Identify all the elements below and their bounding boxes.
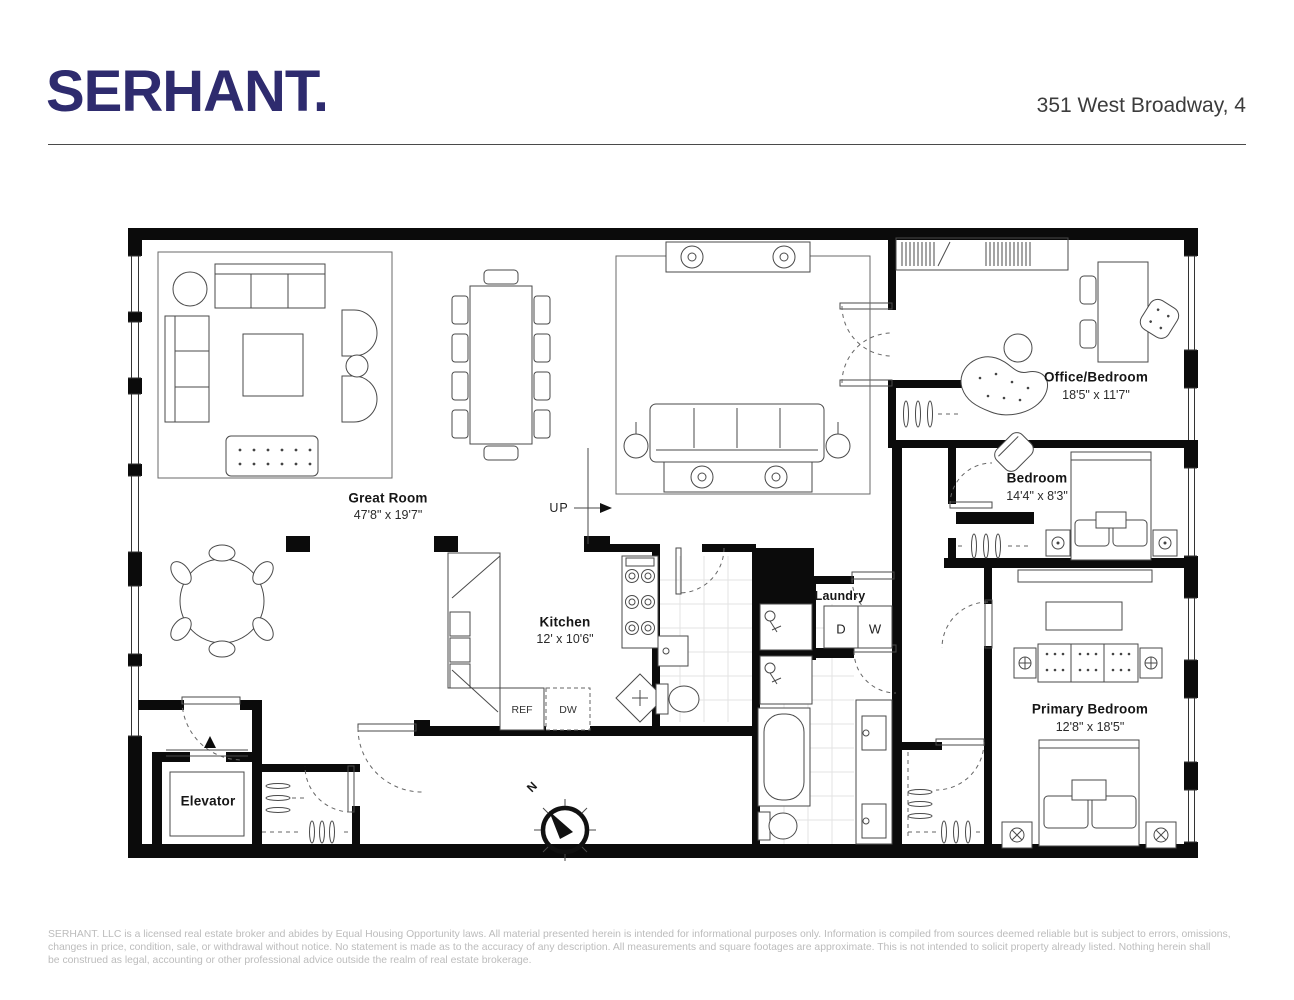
breakfast-table-icon bbox=[167, 545, 278, 657]
closet-hangers-icon bbox=[908, 752, 984, 843]
desk-icon bbox=[1080, 262, 1182, 362]
room-label-office-bedroom: Office/Bedroom bbox=[1044, 370, 1148, 385]
room-dims-primary-bedroom: 12'8" x 18'5" bbox=[1056, 720, 1125, 734]
dishwasher-label: DW bbox=[559, 704, 577, 716]
wardrobe-icon bbox=[896, 238, 1068, 270]
elevator-icon bbox=[166, 736, 248, 836]
closet-hangers-icon bbox=[904, 401, 959, 427]
round-table-icon bbox=[1004, 334, 1032, 362]
media-console-icon bbox=[1014, 644, 1162, 682]
legal-disclaimer: SERHANT. LLC is a licensed real estate b… bbox=[48, 928, 1248, 967]
refrigerator-label: REF bbox=[512, 704, 533, 716]
stairs-up-label: UP bbox=[549, 501, 568, 515]
dresser-icon bbox=[1018, 570, 1152, 630]
disclaimer-line: SERHANT. LLC is a licensed real estate b… bbox=[48, 928, 1248, 941]
disclaimer-line: be construed as legal, accounting or oth… bbox=[48, 954, 1248, 967]
room-label-great-room: Great Room bbox=[348, 491, 427, 506]
room-dims-kitchen: 12' x 10'6" bbox=[536, 632, 593, 646]
floorplan-page: SERHANT. 351 West Broadway, 4 bbox=[0, 0, 1294, 1000]
stove-icon bbox=[622, 556, 658, 648]
closet-hangers-icon bbox=[262, 784, 352, 844]
floorplan-drawing bbox=[0, 0, 1294, 1000]
stairs-icon bbox=[574, 448, 612, 544]
sofa-icon bbox=[650, 404, 824, 462]
room-dims-great-room: 47'8" x 19'7" bbox=[354, 508, 423, 522]
disclaimer-line: changes in price, condition, sale, or wi… bbox=[48, 941, 1248, 954]
room-label-kitchen: Kitchen bbox=[540, 615, 591, 630]
coffee-table-icon bbox=[243, 334, 303, 396]
room-label-bedroom: Bedroom bbox=[1007, 471, 1068, 486]
vanity-sink-icon bbox=[856, 700, 892, 844]
room-label-primary-bedroom: Primary Bedroom bbox=[1032, 702, 1148, 717]
compass-icon bbox=[534, 799, 596, 861]
room-dims-office-bedroom: 18'5" x 11'7" bbox=[1062, 388, 1130, 402]
toilet-icon bbox=[758, 812, 797, 840]
media-console-icon bbox=[666, 242, 810, 272]
ottoman-icon bbox=[226, 436, 318, 476]
toilet-icon bbox=[656, 684, 699, 714]
bathtub-icon bbox=[758, 708, 810, 806]
kitchen-counter-icon bbox=[448, 553, 500, 712]
dining-table-icon bbox=[452, 270, 550, 460]
room-dims-bedroom: 14'4" x 8'3" bbox=[1006, 489, 1068, 503]
bed-icon bbox=[1039, 740, 1139, 846]
room-label-laundry: Laundry bbox=[815, 589, 866, 603]
media-console-icon bbox=[664, 462, 812, 492]
room-label-elevator: Elevator bbox=[181, 794, 236, 809]
bed-icon bbox=[1071, 452, 1151, 560]
sofa-icon bbox=[215, 264, 325, 308]
dryer-label: D bbox=[836, 622, 845, 637]
armchair-icon bbox=[991, 429, 1036, 474]
washer-label: W bbox=[869, 622, 881, 637]
armchair-icon bbox=[342, 310, 377, 422]
sofa-icon bbox=[165, 316, 209, 422]
round-table-icon bbox=[173, 272, 207, 306]
closet-hangers-icon bbox=[958, 534, 1030, 558]
bathroom-sink-icon bbox=[658, 636, 688, 666]
window-icon bbox=[1183, 256, 1198, 842]
chaise-icon bbox=[961, 357, 1048, 415]
